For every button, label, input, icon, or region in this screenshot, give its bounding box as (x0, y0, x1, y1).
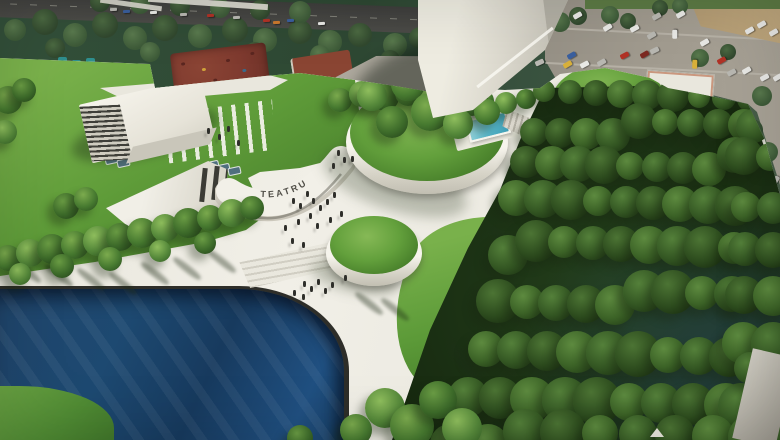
person (293, 290, 296, 296)
car (287, 19, 294, 22)
car (180, 13, 187, 16)
car (150, 11, 157, 14)
car (207, 14, 214, 17)
person (310, 286, 313, 292)
person (351, 156, 354, 162)
person (297, 219, 300, 225)
tree (194, 232, 216, 254)
car (110, 8, 117, 11)
person (312, 198, 315, 204)
tree-canopy (222, 17, 248, 43)
car (672, 30, 677, 39)
person (333, 192, 336, 198)
person (227, 126, 230, 132)
tree (9, 263, 31, 285)
person (302, 242, 305, 248)
aerial-park-render: TEATRU (0, 0, 780, 440)
tree-canopy (63, 23, 87, 47)
person (299, 203, 302, 209)
person (218, 134, 221, 140)
tree (652, 109, 678, 135)
tree-canopy (752, 86, 772, 106)
tree (583, 186, 613, 216)
tree (149, 240, 171, 262)
person (329, 217, 332, 223)
tree (442, 408, 482, 440)
person (309, 213, 312, 219)
tree (98, 247, 122, 271)
person (306, 191, 309, 197)
person (324, 288, 327, 294)
person (344, 275, 347, 281)
tree (357, 81, 387, 111)
car (318, 22, 325, 25)
tree (74, 187, 98, 211)
person (302, 294, 305, 300)
tree (240, 196, 264, 220)
person (337, 150, 340, 156)
person (292, 198, 295, 204)
playground-dot (226, 59, 230, 62)
person (284, 225, 287, 231)
tree (583, 80, 609, 106)
tree-shadow (171, 255, 202, 281)
tree-canopy (45, 38, 65, 58)
car (534, 58, 544, 66)
person (332, 163, 335, 169)
person (207, 128, 210, 134)
tree-canopy (152, 15, 178, 41)
car (263, 19, 270, 22)
wall-slit (199, 168, 208, 202)
tent-peak (650, 428, 664, 437)
playground-dot (250, 52, 254, 55)
tree (12, 78, 36, 102)
small-lawn-mound (330, 216, 418, 274)
person (237, 140, 240, 146)
tree (558, 80, 582, 104)
tree-canopy (188, 24, 212, 48)
tree (340, 414, 372, 440)
tree-shadow (139, 260, 170, 286)
person (316, 223, 319, 229)
person (291, 238, 294, 244)
tree-canopy (92, 12, 118, 38)
person (340, 211, 343, 217)
car (123, 10, 130, 13)
tree-canopy (601, 6, 619, 24)
tree (50, 254, 74, 278)
car (692, 60, 697, 69)
person (319, 205, 322, 211)
playground-dot (242, 69, 246, 72)
car (233, 16, 240, 19)
car (273, 21, 280, 24)
tree-canopy (32, 9, 58, 35)
tree-canopy (288, 20, 312, 44)
person (331, 282, 334, 288)
tree (376, 106, 408, 138)
tree-canopy (4, 19, 26, 41)
tree-canopy (348, 23, 372, 47)
tree (520, 118, 548, 146)
tree-shadow (206, 248, 237, 274)
person (303, 281, 306, 287)
playground-dot (181, 62, 185, 65)
tree-canopy (140, 42, 160, 62)
playground-dot (202, 68, 206, 71)
person (326, 199, 329, 205)
person (343, 157, 346, 163)
person (317, 279, 320, 285)
